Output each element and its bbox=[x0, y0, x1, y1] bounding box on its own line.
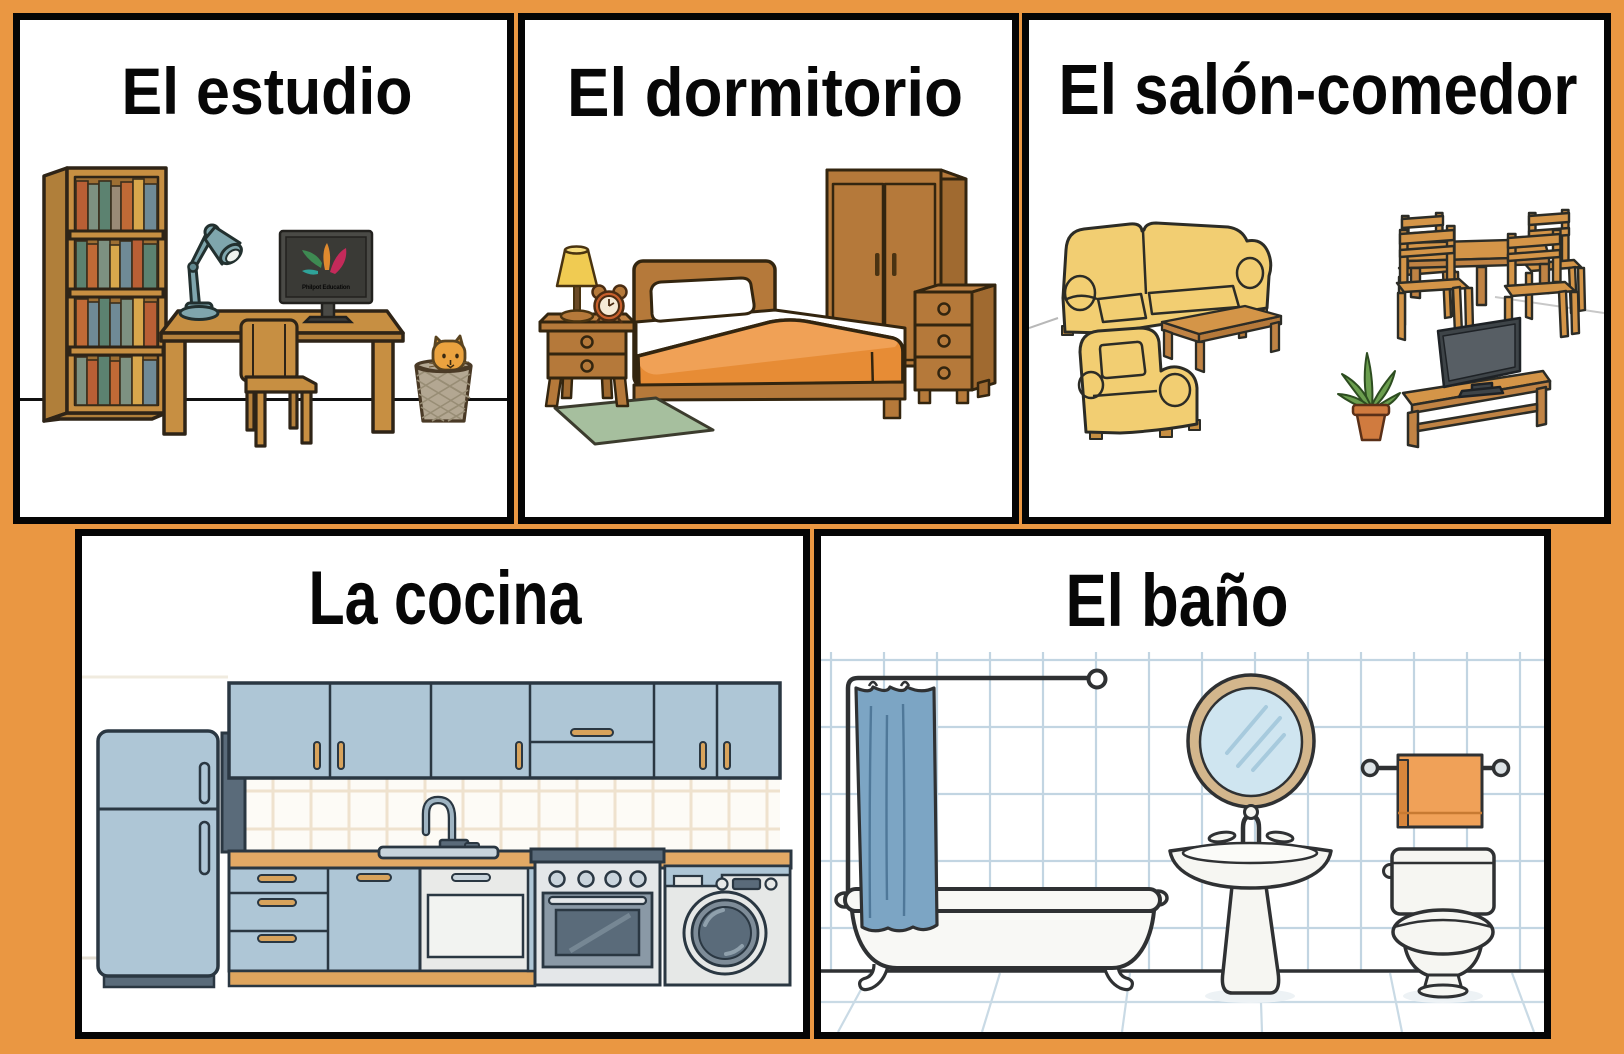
svg-text:El estudio: El estudio bbox=[122, 54, 413, 128]
svg-text:Philpot Education: Philpot Education bbox=[302, 285, 350, 291]
svg-text:La cocina: La cocina bbox=[309, 556, 583, 641]
svg-text:El baño: El baño bbox=[1066, 559, 1289, 642]
svg-text:El salón-comedor: El salón-comedor bbox=[1059, 51, 1578, 130]
svg-text:El dormitorio: El dormitorio bbox=[567, 54, 963, 131]
